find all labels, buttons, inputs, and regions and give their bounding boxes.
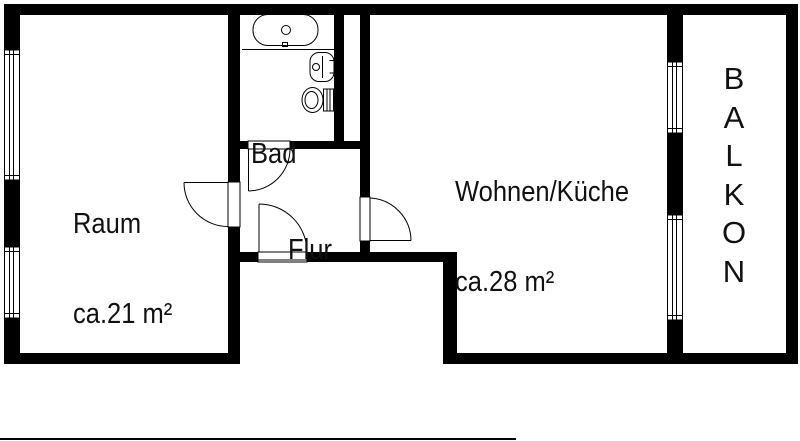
toilet-icon [302, 88, 334, 113]
wall-partition-upper [228, 15, 240, 182]
wall-left-b [4, 180, 20, 247]
wall-top [4, 4, 798, 15]
raum-name: Raum [73, 209, 172, 239]
balkon-letter: K [724, 179, 745, 210]
flur-name: Flur [288, 235, 332, 265]
window-icon-raum-2 [5, 247, 20, 318]
window-icon-balkon-2 [668, 215, 683, 320]
wall-balkon-c [667, 320, 683, 353]
balkon-letter: O [722, 217, 746, 248]
bathtub-icon [242, 15, 334, 50]
wall-balkon-b [667, 133, 683, 215]
wall-bad-bottom-b [290, 141, 370, 149]
wohnen-kueche-area: ca.28 m² [455, 267, 629, 297]
balkon-letter: A [724, 102, 745, 133]
wall-entrance-left [238, 252, 258, 262]
wall-left-a [4, 4, 20, 50]
flur-label: Flur [288, 175, 332, 325]
raum-area: ca.21 m² [73, 299, 172, 329]
wall-bad-bottom-a [240, 141, 248, 149]
doorway-raum [228, 182, 240, 227]
bad-name: Bad [251, 139, 296, 169]
door-swing-raum [184, 183, 228, 227]
wall-balkon-a [667, 15, 683, 62]
door-swing-wohnen [370, 198, 411, 241]
wall-bad-right [334, 15, 344, 149]
balkon-letter: B [724, 63, 745, 94]
doorway-wohnen [360, 197, 370, 241]
window-icon-raum-1 [5, 50, 20, 180]
wall-partition-lower [228, 227, 240, 364]
wohnen-kueche-label: Wohnen/Küche ca.28 m² [455, 117, 629, 357]
balkon-letter: L [725, 140, 742, 171]
wall-right [786, 15, 798, 353]
footer-notes: Maße am Bau können abweichen Maßstab 1 :… [8, 379, 388, 441]
window-icon-balkon-1 [668, 62, 683, 133]
washbasin-icon [310, 53, 334, 82]
wohnen-kueche-name: Wohnen/Küche [455, 177, 629, 207]
balkon-label: B A L K O N [716, 63, 752, 287]
balkon-letter: N [723, 256, 745, 287]
raum-label: Raum ca.21 m² [73, 149, 172, 389]
wall-flur-right-upper [360, 15, 370, 197]
floor-plan: Raum ca.21 m² Bad Flur Wohnen/Küche ca.2… [0, 0, 800, 441]
